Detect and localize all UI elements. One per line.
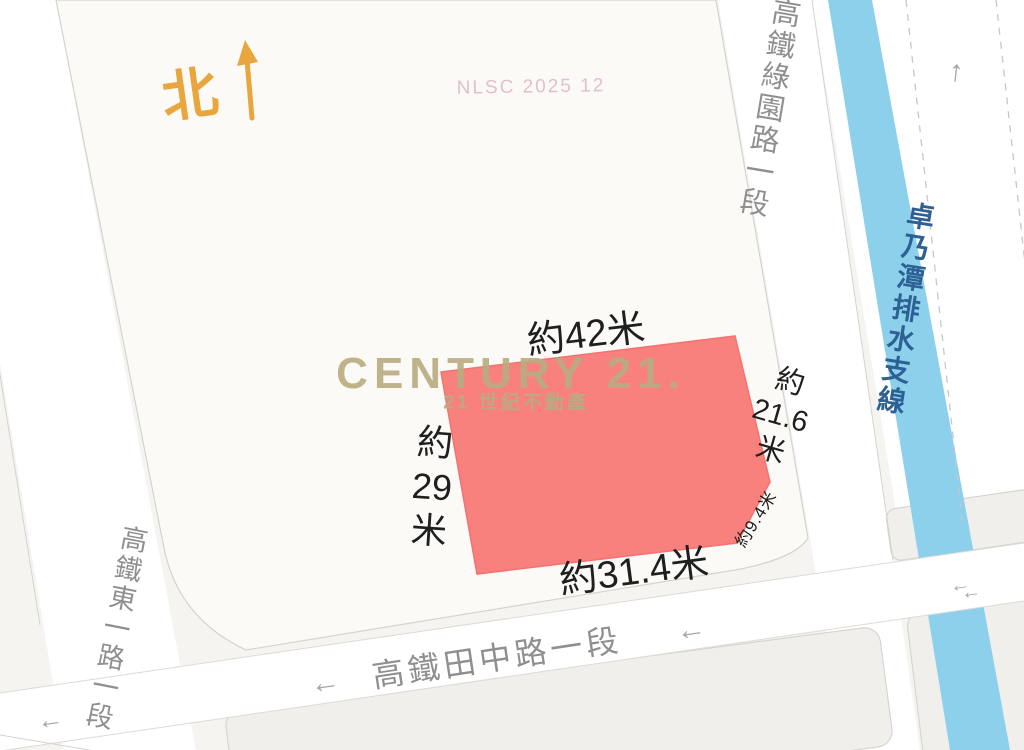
left-arrow-icon: ← <box>674 613 708 647</box>
watermark-subtitle: 21 世紀不動產 <box>443 394 588 413</box>
left-arrow-icon: ← <box>960 581 983 604</box>
measurement-left-line2: 29 <box>410 464 453 511</box>
measurement-left-line3: 米 <box>407 508 450 555</box>
up-arrow-icon: ↑ <box>947 56 965 87</box>
map-source-label: NLSC 2025 12 <box>457 76 606 98</box>
map-canvas: 北 NLSC 2025 12 CENTURY 21. 21 世紀不動產 約42米… <box>0 0 1024 750</box>
left-arrow-icon: ← <box>308 666 342 700</box>
north-label: 北 <box>158 63 221 126</box>
watermark-title: CENTURY 21. <box>336 352 686 396</box>
measurement-left-line1: 約 <box>414 420 457 467</box>
left-arrow-icon: ← <box>35 704 64 733</box>
